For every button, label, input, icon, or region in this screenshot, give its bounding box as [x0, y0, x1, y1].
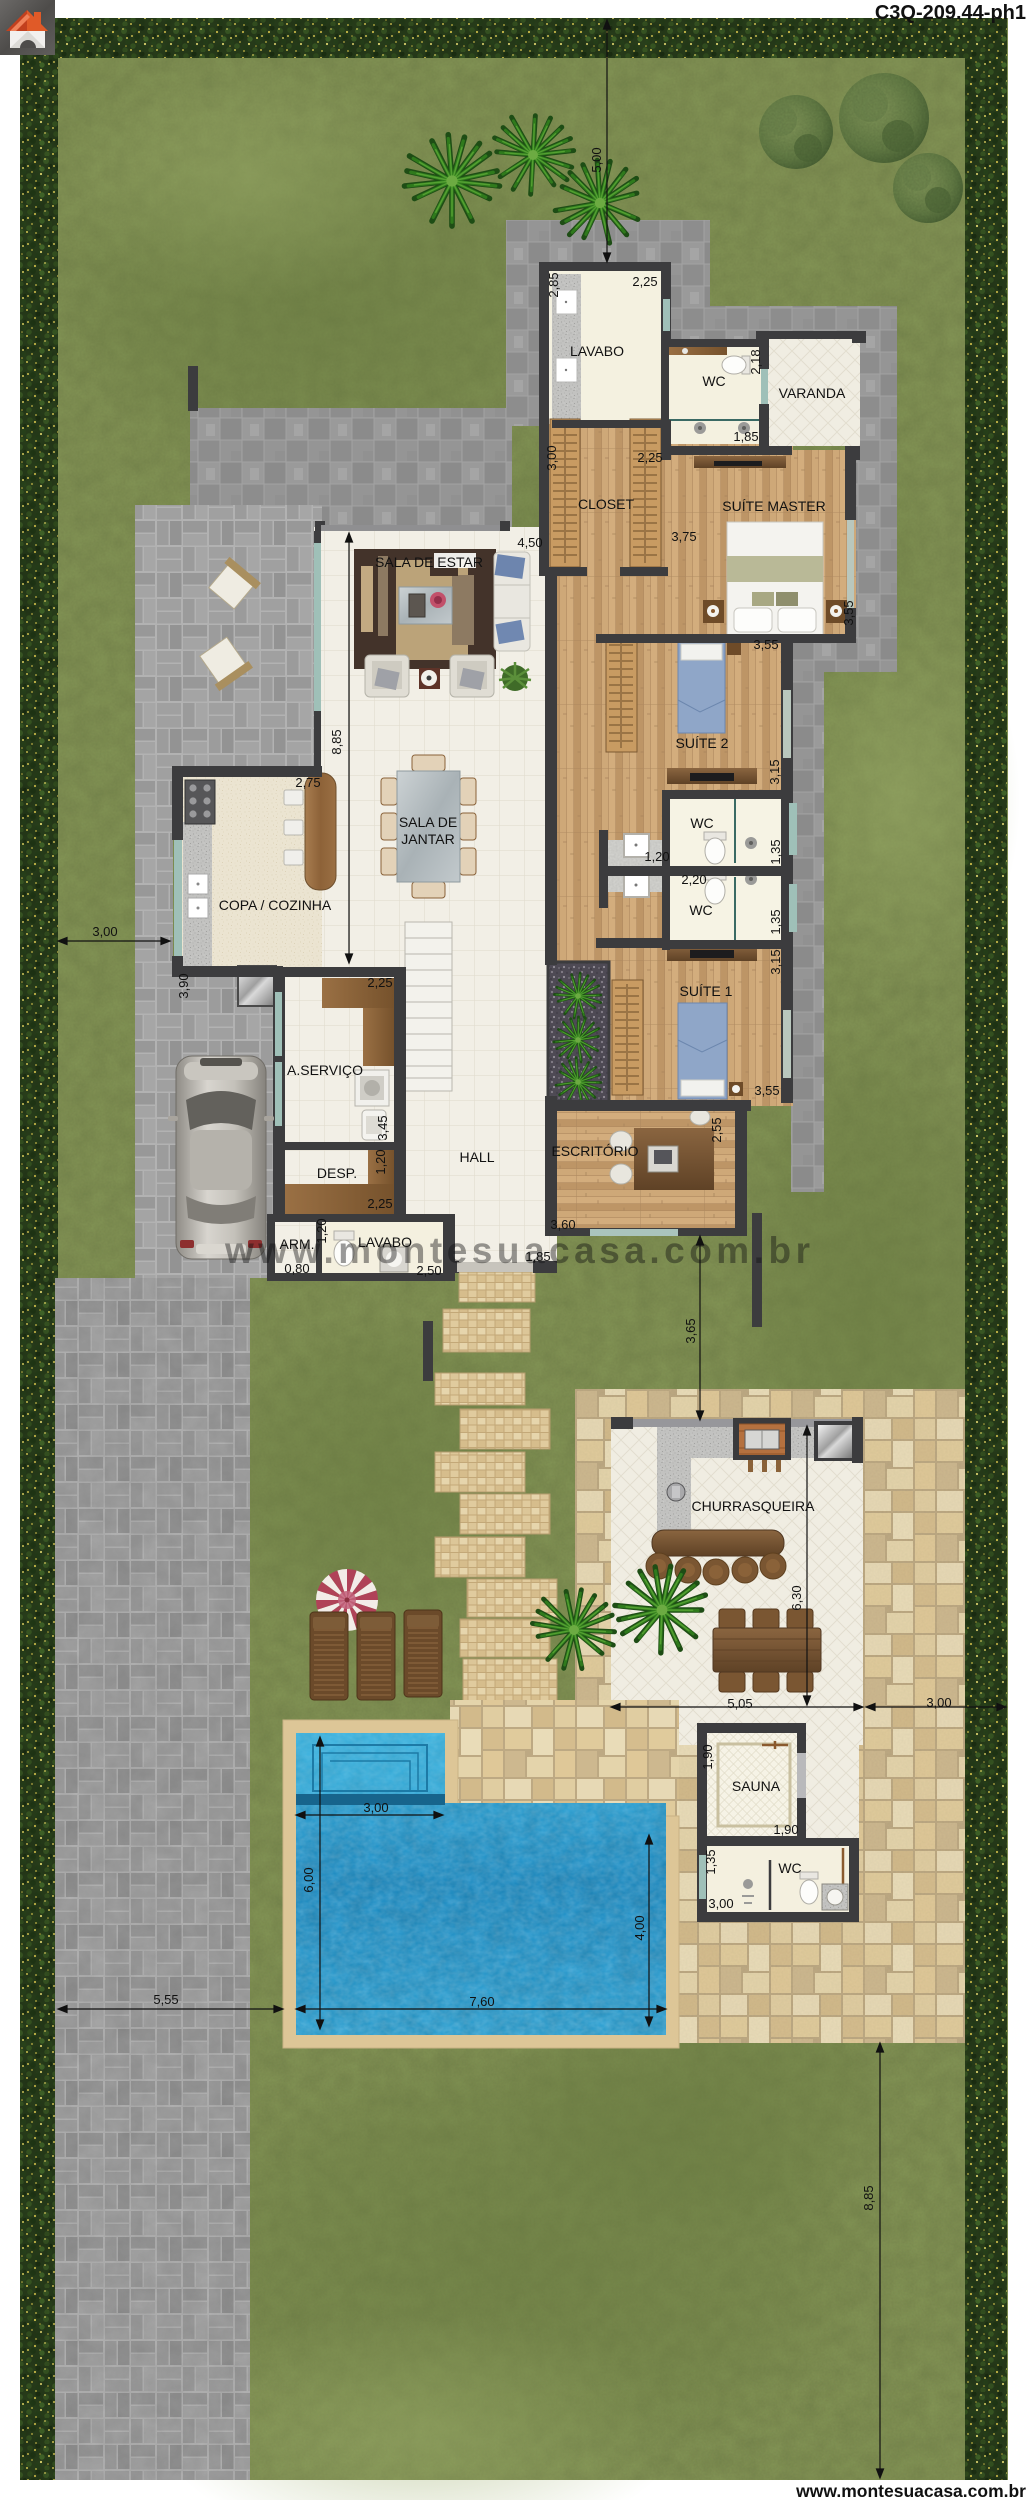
svg-text:SUÍTE 1: SUÍTE 1	[680, 983, 733, 999]
svg-text:A.SERVIÇO: A.SERVIÇO	[287, 1062, 363, 1078]
svg-text:3,15: 3,15	[767, 759, 782, 784]
svg-text:SALA DE ESTAR: SALA DE ESTAR	[375, 554, 483, 570]
svg-text:2,20: 2,20	[681, 872, 706, 887]
svg-text:5,00: 5,00	[589, 147, 604, 172]
svg-text:3,00: 3,00	[92, 924, 117, 939]
svg-text:3,90: 3,90	[176, 973, 191, 998]
svg-text:1,85: 1,85	[733, 429, 758, 444]
svg-text:1,90: 1,90	[773, 1822, 798, 1837]
svg-text:3,00: 3,00	[363, 1800, 388, 1815]
svg-text:1,90: 1,90	[700, 1744, 715, 1769]
svg-text:WC: WC	[690, 815, 713, 831]
svg-text:C3Q-209.44-ph1: C3Q-209.44-ph1	[875, 2, 1026, 24]
svg-text:2,75: 2,75	[295, 775, 320, 790]
svg-text:SAUNA: SAUNA	[732, 1778, 781, 1794]
svg-text:2,18: 2,18	[748, 349, 763, 374]
svg-text:3,45: 3,45	[375, 1115, 390, 1140]
svg-text:CHURRASQUEIRA: CHURRASQUEIRA	[692, 1498, 816, 1514]
svg-text:SUÍTE MASTER: SUÍTE MASTER	[722, 498, 825, 514]
svg-text:1,20: 1,20	[644, 849, 669, 864]
svg-text:2,25: 2,25	[367, 1196, 392, 1211]
svg-text:3,55: 3,55	[753, 637, 778, 652]
svg-text:VARANDA: VARANDA	[779, 385, 846, 401]
svg-text:www.montesuacasa.com.br: www.montesuacasa.com.br	[224, 1230, 810, 1271]
svg-text:4,50: 4,50	[517, 535, 542, 550]
svg-text:www.montesuacasa.com.br: www.montesuacasa.com.br	[795, 2481, 1026, 2500]
svg-text:1,20: 1,20	[373, 1149, 388, 1174]
svg-text:3,55: 3,55	[754, 1083, 779, 1098]
svg-text:3,00: 3,00	[708, 1896, 733, 1911]
svg-text:8,85: 8,85	[861, 2185, 876, 2210]
svg-text:5,05: 5,05	[727, 1696, 752, 1711]
svg-text:2,55: 2,55	[709, 1117, 724, 1142]
svg-text:JANTAR: JANTAR	[401, 831, 454, 847]
svg-text:3,75: 3,75	[671, 529, 696, 544]
svg-text:LAVABO: LAVABO	[570, 343, 624, 359]
svg-text:7,60: 7,60	[469, 1994, 494, 2009]
svg-text:3,55: 3,55	[841, 600, 856, 625]
svg-text:WC: WC	[689, 902, 712, 918]
svg-text:WC: WC	[778, 1860, 801, 1876]
svg-text:5,55: 5,55	[153, 1992, 178, 2007]
svg-text:ESCRITÓRIO: ESCRITÓRIO	[551, 1143, 638, 1159]
svg-text:1,35: 1,35	[768, 839, 783, 864]
svg-text:3,00: 3,00	[926, 1695, 951, 1710]
svg-text:2,25: 2,25	[367, 975, 392, 990]
svg-text:2,25: 2,25	[637, 450, 662, 465]
svg-text:3,00: 3,00	[544, 445, 559, 470]
svg-text:2,25: 2,25	[632, 274, 657, 289]
svg-text:SUÍTE 2: SUÍTE 2	[676, 735, 729, 751]
svg-text:6,30: 6,30	[789, 1585, 804, 1610]
svg-text:6,00: 6,00	[301, 1867, 316, 1892]
svg-text:8,85: 8,85	[329, 729, 344, 754]
svg-text:4,00: 4,00	[632, 1915, 647, 1940]
svg-text:1,35: 1,35	[768, 909, 783, 934]
svg-text:SALA DE: SALA DE	[399, 814, 457, 830]
svg-text:3,15: 3,15	[768, 949, 783, 974]
svg-text:COPA / COZINHA: COPA / COZINHA	[219, 897, 332, 913]
svg-text:2,85: 2,85	[546, 272, 561, 297]
svg-text:CLOSET: CLOSET	[578, 496, 634, 512]
svg-text:3,65: 3,65	[683, 1318, 698, 1343]
svg-text:HALL: HALL	[459, 1149, 494, 1165]
svg-text:1,35: 1,35	[703, 1849, 718, 1874]
svg-text:WC: WC	[702, 373, 725, 389]
svg-text:DESP.: DESP.	[317, 1165, 357, 1181]
